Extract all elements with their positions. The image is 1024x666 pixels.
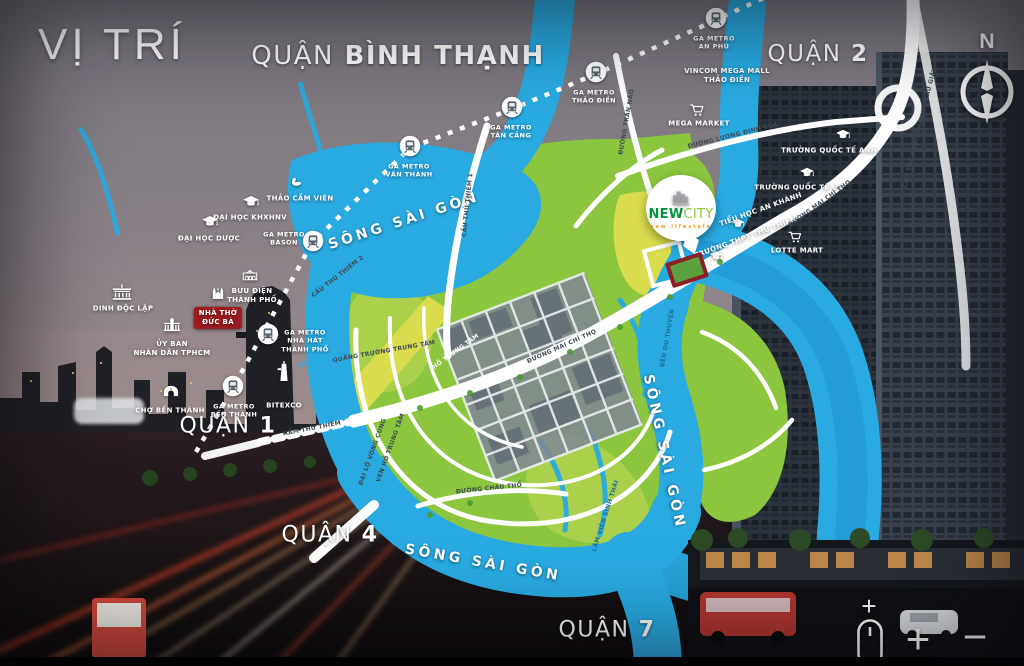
location-map-slide: VỊ TRÍ QUẬN BÌNH THẠNHQUẬN 2QUẬN 1QUẬN 4… — [0, 0, 1024, 666]
zoom-hint-plus: + — [861, 593, 876, 619]
letterbox-bar — [0, 657, 1024, 666]
zoom-out-button[interactable]: − — [963, 616, 988, 658]
zoom-controls: + + − — [0, 0, 1024, 666]
zoom-in-button[interactable]: + — [906, 618, 931, 660]
